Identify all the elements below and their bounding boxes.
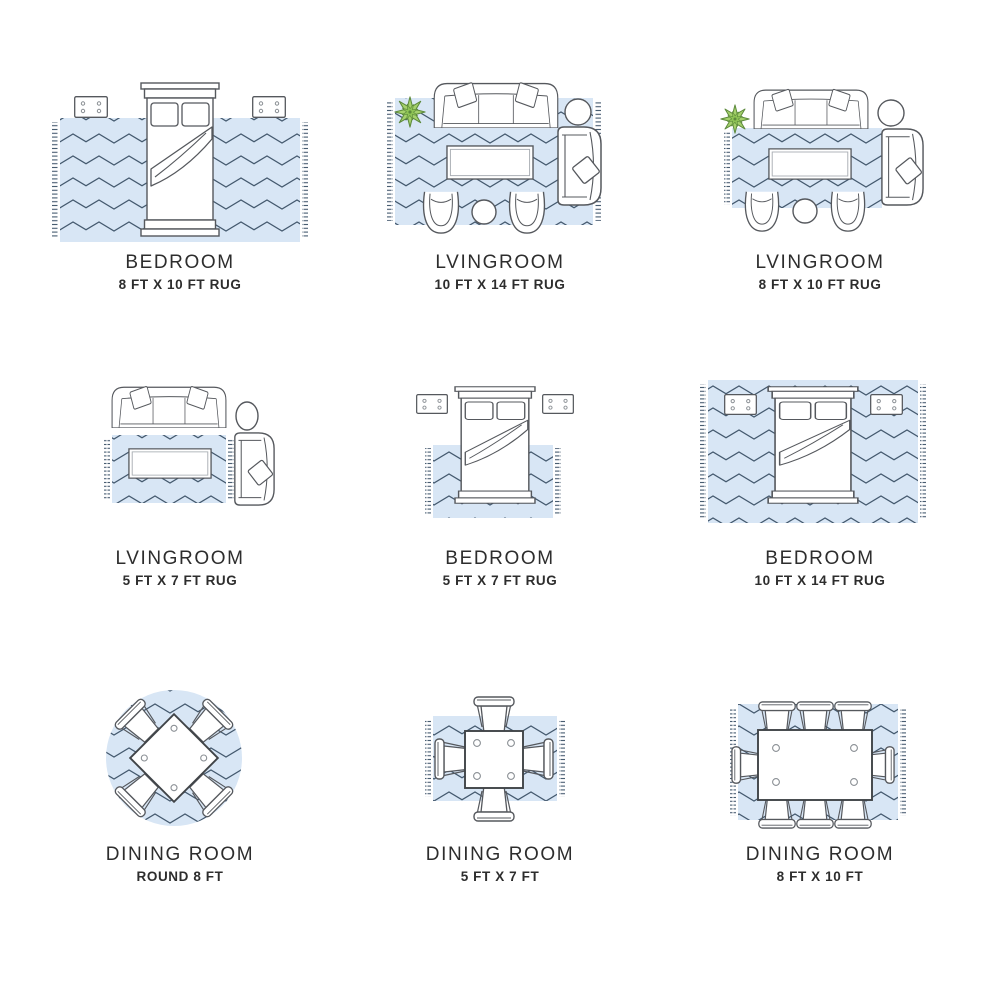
sofa-icon xyxy=(112,386,226,428)
diningroom-round8-diagram xyxy=(30,674,330,839)
room-card-livingroom-8x10: LVINGROOM 8 FT X 10 FT RUG xyxy=(660,82,980,292)
sofa-icon xyxy=(434,82,557,128)
rug-fringe-left xyxy=(387,102,393,221)
room-card-diningroom-8x10: DINING ROOM 8 FT X 10 FT xyxy=(660,674,980,884)
nightstand-icon xyxy=(253,97,286,118)
room-label: LVINGROOM 10 FT X 14 FT RUG xyxy=(435,252,566,292)
room-title: LVINGROOM xyxy=(755,252,884,274)
bedroom-8x10-diagram xyxy=(30,82,330,247)
side-table-icon xyxy=(236,402,258,430)
dining-table-icon xyxy=(465,731,523,788)
room-title: DINING ROOM xyxy=(106,844,255,866)
rug-size-text: 5 FT X 7 FT RUG xyxy=(115,573,244,588)
side-table-icon xyxy=(565,99,591,125)
sofa-icon xyxy=(754,89,868,129)
coffee-table-icon xyxy=(129,449,211,478)
room-card-livingroom-10x14: LVINGROOM 10 FT X 14 FT RUG xyxy=(340,82,660,292)
diningroom-5x7-diagram xyxy=(350,674,650,839)
rug-size-text: 8 FT X 10 FT RUG xyxy=(119,277,242,292)
room-card-diningroom-5x7: DINING ROOM 5 FT X 7 FT xyxy=(340,674,660,884)
rug-size-text: ROUND 8 FT xyxy=(106,869,255,884)
rug-fringe-right xyxy=(302,122,308,238)
room-title: LVINGROOM xyxy=(115,548,244,570)
room-label: DINING ROOM 5 FT X 7 FT xyxy=(426,844,575,884)
nightstand-icon xyxy=(75,97,108,118)
plant-icon xyxy=(721,105,749,133)
side-table-icon xyxy=(472,200,496,224)
rug-size-guide-grid: BEDROOM 8 FT X 10 FT RUG LVINGROOM 10 FT… xyxy=(20,0,980,884)
room-title: DINING ROOM xyxy=(426,844,575,866)
coffee-table-icon xyxy=(769,149,851,179)
nightstand-icon xyxy=(725,395,757,415)
side-table-icon xyxy=(878,100,904,126)
room-title: BEDROOM xyxy=(443,548,558,570)
room-label: BEDROOM 10 FT X 14 FT RUG xyxy=(755,548,886,588)
room-title: LVINGROOM xyxy=(435,252,566,274)
bed-icon xyxy=(768,387,858,503)
armchair-icon xyxy=(882,129,923,205)
rug-size-text: 5 FT X 7 FT xyxy=(426,869,575,884)
room-label: DINING ROOM ROUND 8 FT xyxy=(106,844,255,884)
nightstand-icon xyxy=(543,395,574,414)
rug-size-text: 10 FT X 14 FT RUG xyxy=(435,277,566,292)
rug-fringe-right xyxy=(920,384,926,519)
bedroom-10x14-diagram xyxy=(670,378,970,543)
room-card-bedroom-10x14: BEDROOM 10 FT X 14 FT RUG xyxy=(660,378,980,588)
nightstand-icon xyxy=(871,395,903,415)
armchair-icon xyxy=(235,433,274,505)
dining-table-icon xyxy=(758,730,872,800)
nightstand-icon xyxy=(417,395,448,414)
barrel-chair-icon xyxy=(424,192,459,233)
room-label: BEDROOM 5 FT X 7 FT RUG xyxy=(443,548,558,588)
room-card-bedroom-5x7: BEDROOM 5 FT X 7 FT RUG xyxy=(340,378,660,588)
rug-fringe-right xyxy=(900,708,906,816)
rug-fringe-left xyxy=(104,438,110,500)
barrel-chair-icon xyxy=(831,192,864,231)
livingroom-8x10-diagram xyxy=(670,82,970,247)
armchair-icon xyxy=(558,127,601,205)
room-card-bedroom-8x10: BEDROOM 8 FT X 10 FT RUG xyxy=(20,82,340,292)
room-title: BEDROOM xyxy=(119,252,242,274)
bed-icon xyxy=(141,83,219,236)
rug-size-text: 10 FT X 14 FT RUG xyxy=(755,573,886,588)
barrel-chair-icon xyxy=(745,192,778,231)
diningroom-8x10-diagram xyxy=(670,674,970,839)
room-label: DINING ROOM 8 FT X 10 FT xyxy=(746,844,895,884)
plant-icon xyxy=(395,97,425,127)
room-label: BEDROOM 8 FT X 10 FT RUG xyxy=(119,252,242,292)
rug-fringe-right xyxy=(559,720,565,797)
barrel-chair-icon xyxy=(510,192,545,233)
room-label: LVINGROOM 5 FT X 7 FT RUG xyxy=(115,548,244,588)
rug-fringe-left xyxy=(52,122,58,238)
room-label: LVINGROOM 8 FT X 10 FT RUG xyxy=(755,252,884,292)
rug-size-text: 8 FT X 10 FT xyxy=(746,869,895,884)
coffee-table-icon xyxy=(447,146,533,179)
room-title: DINING ROOM xyxy=(746,844,895,866)
side-table-icon xyxy=(793,199,817,223)
rug-size-text: 8 FT X 10 FT RUG xyxy=(755,277,884,292)
rug-fringe-left xyxy=(700,384,706,519)
room-card-livingroom-5x7: LVINGROOM 5 FT X 7 FT RUG xyxy=(20,378,340,588)
room-title: BEDROOM xyxy=(755,548,886,570)
rug-fringe-left xyxy=(425,720,431,797)
rug-fringe-left xyxy=(724,131,730,205)
room-card-diningroom-round8: DINING ROOM ROUND 8 FT xyxy=(20,674,340,884)
livingroom-5x7-diagram xyxy=(30,378,330,543)
rug-fringe-right xyxy=(555,448,561,515)
bedroom-5x7-diagram xyxy=(350,378,650,543)
livingroom-10x14-diagram xyxy=(350,82,650,247)
rug-fringe-right xyxy=(228,438,234,500)
rug-size-text: 5 FT X 7 FT RUG xyxy=(443,573,558,588)
bed-icon xyxy=(455,387,535,503)
rug-fringe-left xyxy=(425,448,431,515)
